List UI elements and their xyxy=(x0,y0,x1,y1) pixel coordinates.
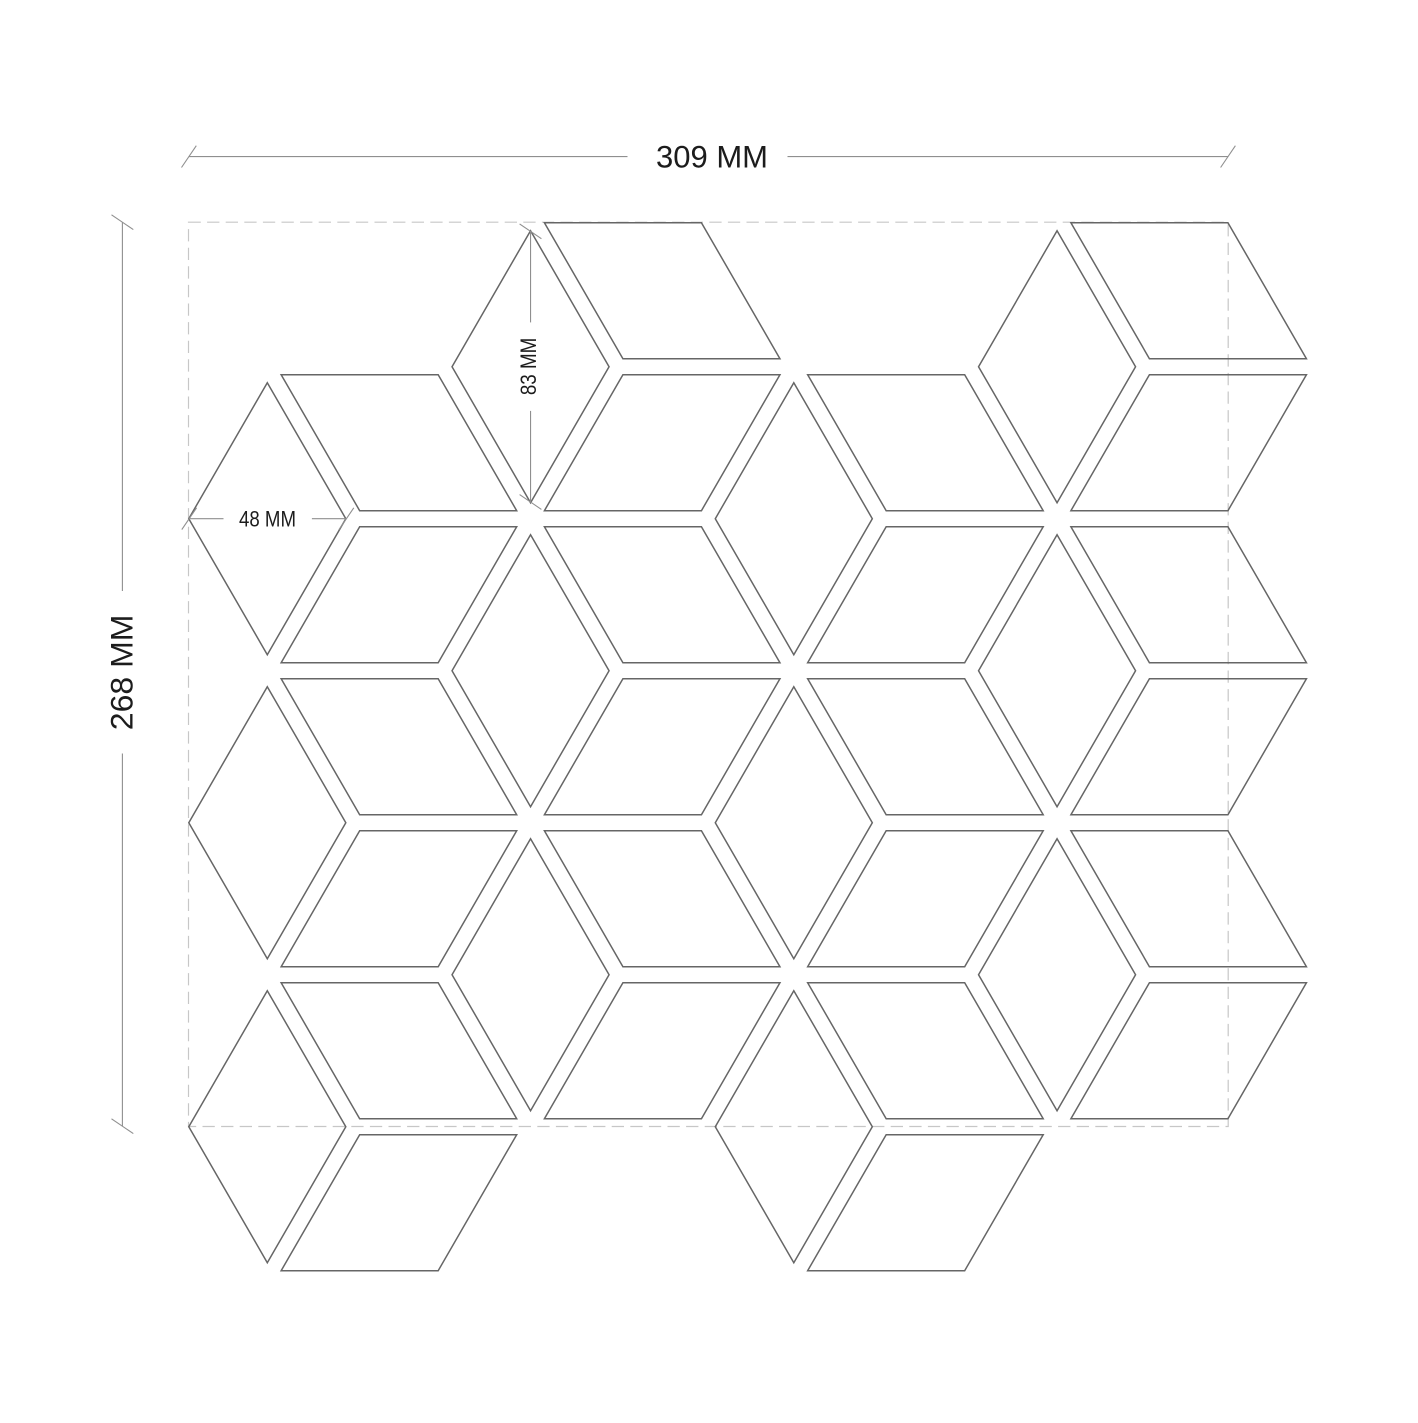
svg-text:309 MM: 309 MM xyxy=(656,139,768,175)
svg-text:83 MM: 83 MM xyxy=(516,338,541,396)
svg-text:268 MM: 268 MM xyxy=(104,615,140,731)
svg-text:48 MM: 48 MM xyxy=(239,506,296,531)
